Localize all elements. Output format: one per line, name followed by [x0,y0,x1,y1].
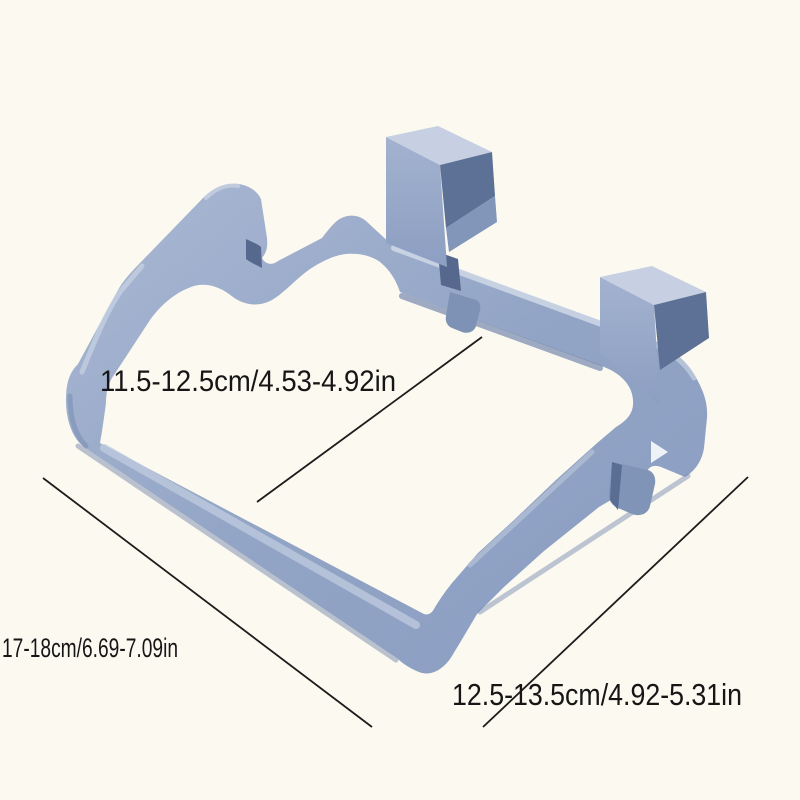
dimension-label-side-depth: 17-18cm/6.69-7.09in [2,633,178,663]
dimension-label-inner-width: 11.5-12.5cm/4.53-4.92in [100,365,396,398]
dimension-label-bottom-width: 12.5-13.5cm/4.92-5.31in [452,677,742,712]
product-image-canvas: 11.5-12.5cm/4.53-4.92in 17-18cm/6.69-7.0… [0,0,800,800]
